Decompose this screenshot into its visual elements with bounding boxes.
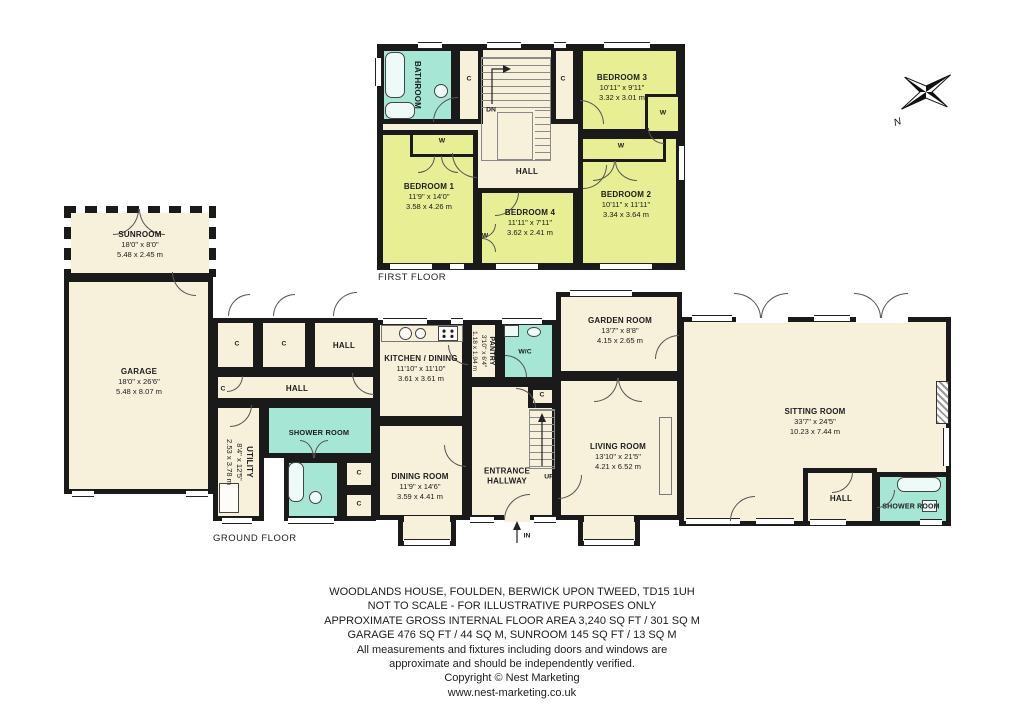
bay-opening — [404, 516, 450, 522]
wc-toilet — [527, 327, 541, 337]
label-garage: GARAGE18'0" x 26'6"5.48 x 8.07 m — [116, 367, 162, 397]
label-closet: C — [221, 386, 226, 395]
stair-treads — [535, 110, 550, 160]
label-bedroom-4: BEDROOM 411'11" x 7'11"3.62 x 2.41 m — [505, 208, 555, 238]
shower-tray — [385, 102, 415, 119]
window — [390, 263, 432, 270]
sink — [434, 84, 448, 98]
fireplace — [936, 381, 949, 424]
label-wardrobe: W — [439, 138, 445, 147]
label-pantry: PANTRY3'10" x 6'4"1.18 x 1.94 m — [470, 331, 496, 371]
window — [584, 539, 634, 546]
window — [943, 428, 950, 466]
door-arc — [333, 292, 357, 316]
window — [502, 318, 542, 325]
stair-treads — [530, 410, 554, 468]
stair-treads — [482, 58, 550, 108]
label-entrance: ENTRANCEHALLWAY — [484, 467, 530, 488]
label-sitting: SITTING ROOM33'7" x 24'5"10.23 x 7.44 m — [784, 407, 845, 437]
label-wc: W/C — [518, 349, 531, 358]
label-hall-top: HALL — [333, 341, 355, 351]
label-bathroom: BATHROOM — [412, 61, 422, 109]
window — [186, 490, 208, 497]
floor-plan-page: N BATHROOM C C DN BEDROOM 310'11" x 9'11… — [0, 0, 1024, 723]
french-door-arc — [734, 293, 761, 318]
footer-disclaimer-scale: NOT TO SCALE - FOR ILLUSTRATIVE PURPOSES… — [0, 599, 1024, 613]
footer-measurements-note-2: approximate and should be independently … — [0, 657, 1024, 671]
label-utility: UTILITY8'4" x 12'5"2.53 x 3.78 m — [224, 439, 254, 485]
window — [810, 519, 846, 526]
window — [418, 42, 442, 49]
footer-copyright: Copyright © Nest Marketing — [0, 671, 1024, 685]
label-closet: C — [540, 392, 545, 401]
label-kitchen: KITCHEN / DINING11'10" x 11'10"3.61 x 3.… — [384, 354, 457, 384]
footer-address: WOODLANDS HOUSE, FOULDEN, BERWICK UPON T… — [0, 585, 1024, 599]
bathtub — [288, 462, 304, 502]
window — [920, 519, 942, 526]
window — [487, 42, 521, 49]
label-wardrobe: W — [482, 233, 488, 242]
toilet — [309, 491, 322, 504]
sunroom-window-wall — [209, 206, 216, 277]
label-hall-right: HALL — [830, 494, 852, 504]
window — [678, 146, 685, 180]
label-garden: GARDEN ROOM13'7" x 8'8"4.15 x 2.65 m — [588, 316, 652, 346]
window — [554, 42, 566, 49]
french-door-arc — [761, 293, 788, 318]
bathtub — [897, 477, 941, 492]
sunroom-window-wall — [64, 206, 71, 277]
window — [534, 516, 556, 523]
window — [570, 290, 632, 297]
label-hall-ff: HALL — [516, 167, 538, 177]
label-bedroom-3: BEDROOM 310'11" x 9'11"3.32 x 3.01 m — [597, 73, 647, 103]
label-shower-right: SHOWER ROOM — [882, 502, 939, 511]
window — [222, 517, 252, 524]
stair-void — [497, 112, 533, 160]
chimney-breast — [659, 417, 672, 495]
kitchen-sink-2 — [415, 328, 426, 339]
window — [814, 315, 850, 322]
french-door-arc — [854, 293, 881, 318]
door-arc — [273, 294, 295, 316]
bay-opening — [584, 516, 634, 522]
window — [404, 539, 450, 546]
label-hall-corridor: HALL — [286, 384, 308, 394]
label-wardrobe: W — [660, 110, 666, 119]
room-dining — [375, 421, 467, 520]
ground-floor-label: GROUND FLOOR — [213, 533, 297, 544]
first-floor-label: FIRST FLOOR — [378, 272, 446, 283]
closet-ff-left — [455, 46, 483, 124]
label-closet: C — [561, 76, 566, 85]
window — [470, 516, 494, 523]
label-living: LIVING ROOM13'10" x 21'5"4.21 x 6.52 m — [590, 442, 646, 472]
label-dn: DN — [486, 107, 496, 116]
window — [692, 315, 732, 322]
label-sunroom: SUNROOM18'0" x 8'0"5.48 x 2.45 m — [117, 230, 163, 260]
window — [496, 263, 538, 270]
bathtub — [385, 52, 405, 98]
label-closet: C — [467, 76, 472, 85]
compass-rose — [901, 75, 950, 109]
window — [72, 490, 94, 497]
label-in: IN — [524, 533, 531, 542]
label-dining: DINING ROOM11'9" x 14'6"3.59 x 4.41 m — [391, 472, 448, 502]
label-closet: C — [282, 341, 287, 350]
label-wardrobe: W — [618, 143, 624, 152]
window — [604, 42, 650, 49]
compass-north-label: N — [892, 116, 902, 129]
footer-website: www.nest-marketing.co.uk — [0, 686, 1024, 700]
label-closet: C — [357, 470, 362, 479]
window — [600, 263, 652, 270]
french-door-arc — [881, 293, 908, 318]
hob — [438, 326, 458, 341]
window — [288, 517, 334, 524]
in-arrowhead — [513, 521, 521, 530]
washer — [219, 483, 239, 513]
closet-ff-right — [551, 46, 578, 124]
footer-text-block: WOODLANDS HOUSE, FOULDEN, BERWICK UPON T… — [0, 585, 1024, 700]
label-up: UP — [544, 474, 553, 483]
wc-sink — [504, 325, 519, 337]
label-closet: C — [235, 341, 240, 350]
window — [375, 58, 382, 86]
footer-garage-sunroom-area: GARAGE 476 SQ FT / 44 SQ M, SUNROOM 145 … — [0, 628, 1024, 642]
window — [383, 318, 427, 325]
door-arc — [228, 294, 250, 316]
kitchen-sink — [399, 327, 412, 340]
label-shower-mid: SHOWER ROOM — [289, 428, 350, 438]
window — [756, 518, 794, 525]
label-bedroom-2: BEDROOM 210'11" x 11'11"3.34 x 3.64 m — [601, 190, 651, 220]
footer-floor-area: APPROXIMATE GROSS INTERNAL FLOOR AREA 3,… — [0, 614, 1024, 628]
window — [450, 263, 464, 270]
label-bedroom-1: BEDROOM 111'9" x 14'0"3.58 x 4.26 m — [404, 182, 454, 212]
label-closet: C — [357, 501, 362, 510]
footer-measurements-note-1: All measurements and fixtures including … — [0, 643, 1024, 657]
window — [451, 318, 463, 325]
